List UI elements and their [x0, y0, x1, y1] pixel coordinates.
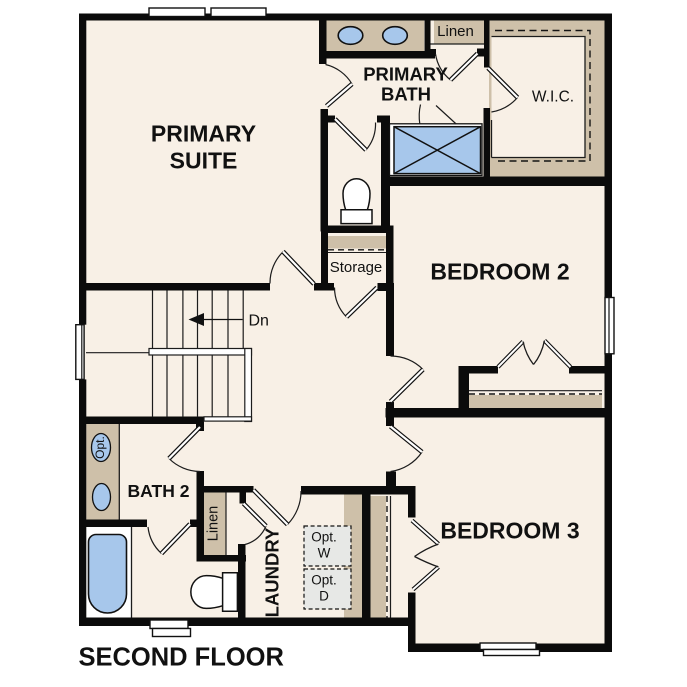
svg-text:Linen: Linen	[206, 506, 222, 541]
svg-text:BATH: BATH	[381, 84, 431, 105]
svg-text:BEDROOM 3: BEDROOM 3	[440, 518, 579, 544]
svg-text:SUITE: SUITE	[170, 148, 238, 174]
svg-text:Linen: Linen	[437, 23, 474, 40]
svg-text:W: W	[318, 546, 331, 561]
svg-text:Opt.: Opt.	[311, 530, 337, 545]
svg-text:PRIMARY: PRIMARY	[151, 121, 256, 147]
svg-text:SECOND FLOOR: SECOND FLOOR	[79, 644, 284, 672]
svg-text:Opt.: Opt.	[93, 436, 107, 459]
svg-text:Storage: Storage	[330, 259, 383, 276]
svg-text:PRIMARY: PRIMARY	[363, 64, 448, 85]
svg-text:BEDROOM 2: BEDROOM 2	[430, 259, 569, 285]
svg-text:Dn: Dn	[249, 313, 269, 330]
svg-text:D: D	[319, 589, 329, 604]
svg-text:BATH 2: BATH 2	[128, 481, 190, 501]
svg-text:LAUNDRY: LAUNDRY	[262, 527, 283, 617]
svg-text:Opt.: Opt.	[311, 573, 337, 588]
svg-text:W.I.C.: W.I.C.	[532, 89, 574, 106]
